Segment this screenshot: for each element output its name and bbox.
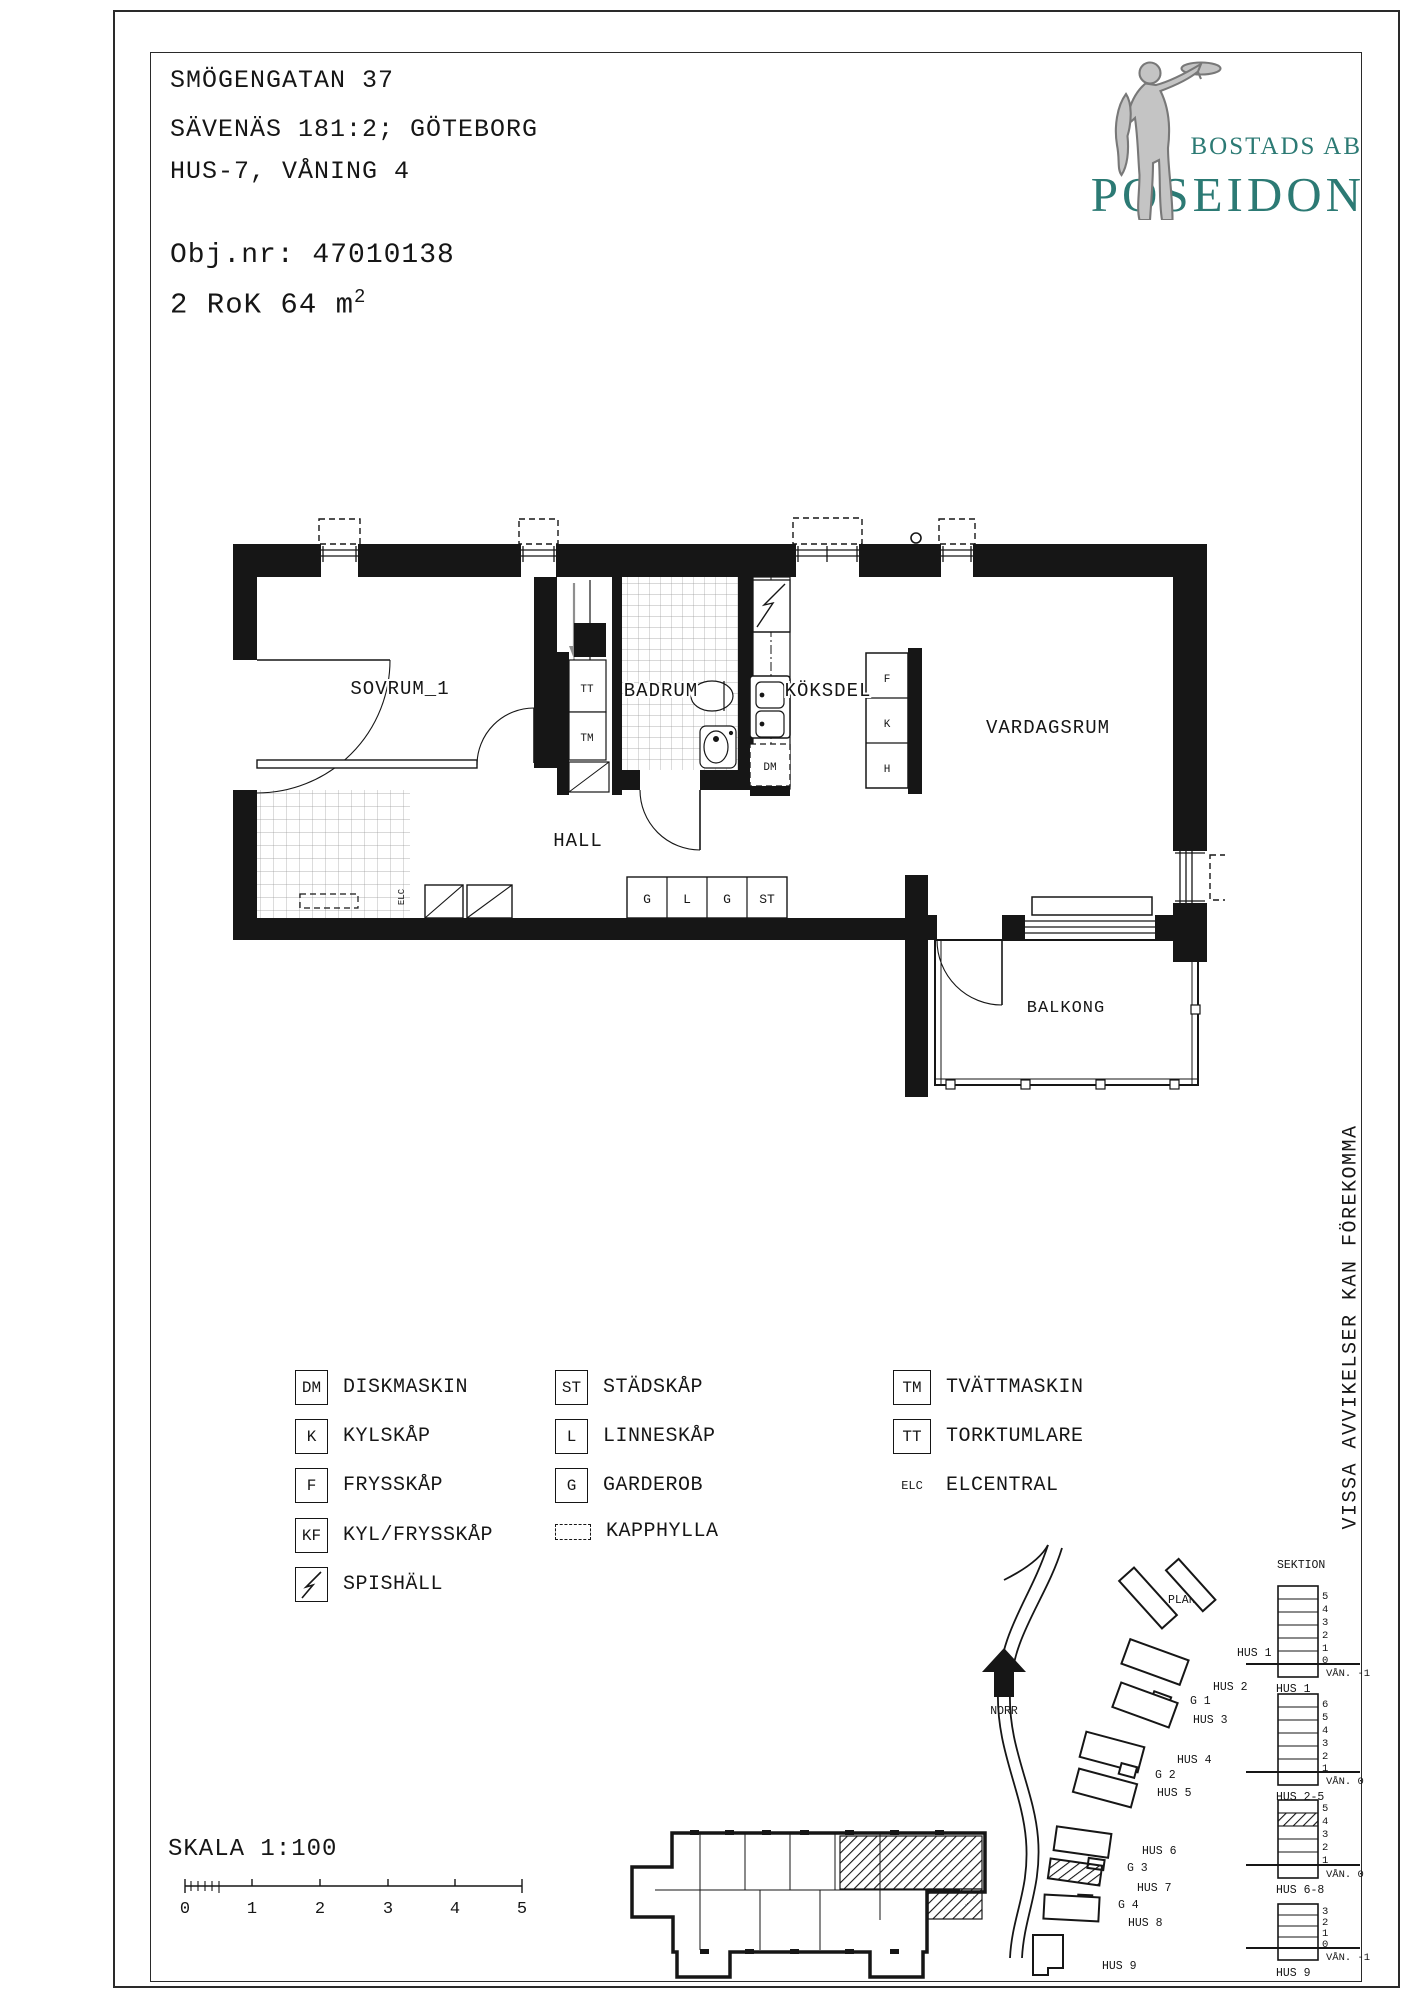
svg-text:VÅN. -1: VÅN. -1 (1326, 1667, 1370, 1680)
hus-label: HUS 2 (1213, 1681, 1248, 1694)
legend-row-tm: TM TVÄTTMASKIN (893, 1370, 1084, 1405)
svg-text:1: 1 (1322, 1763, 1328, 1775)
north-label: NORR (990, 1705, 1018, 1718)
hus-label: G 2 (1155, 1769, 1176, 1782)
address-line: SMÖGENGATAN 37 (170, 66, 394, 95)
hus-label: HUS 8 (1128, 1917, 1163, 1930)
svg-text:2: 2 (1322, 1842, 1328, 1854)
legend-row-f: F FRYSSKÅP (295, 1468, 443, 1503)
hus-label: HUS 9 (1102, 1960, 1137, 1973)
hus-label: HUS 7 (1137, 1882, 1172, 1895)
dm-symbol: DM (295, 1370, 328, 1405)
balcony-door (937, 940, 1002, 1005)
fridge-freezer-column: F K H (866, 648, 922, 794)
section-hus1 (1246, 1586, 1360, 1677)
house-floor-line: HUS-7, VÅNING 4 (170, 157, 410, 186)
scale-label: SKALA 1:100 (168, 1836, 337, 1863)
hus-label: G 3 (1127, 1862, 1148, 1875)
cabinet-label: H (884, 764, 891, 776)
shaft (574, 623, 606, 657)
svg-text:3: 3 (1322, 1738, 1328, 1750)
sektion-label: SEKTION (1277, 1559, 1325, 1572)
legend-row-elc: ELC ELCENTRAL (893, 1468, 1059, 1503)
window-sill (1032, 897, 1152, 915)
sink-icon (700, 726, 736, 768)
linneskap-label: L (683, 892, 691, 907)
legend-row-k: K KYLSKÅP (295, 1419, 431, 1454)
svg-text:VÅN. 0: VÅN. 0 (1326, 1868, 1364, 1881)
svg-text:5: 5 (517, 1900, 527, 1919)
property-line: SÄVENÄS 181:2; GÖTEBORG (170, 115, 538, 144)
hus-label: HUS 1 (1237, 1647, 1272, 1660)
legend-row-dm: DM DISKMASKIN (295, 1370, 468, 1405)
building-overview-plan (545, 1810, 1015, 1985)
hus-label: G 4 (1118, 1899, 1139, 1912)
legend-row-spis: SPISHÄLL (295, 1567, 443, 1602)
svg-text:0: 0 (1322, 1655, 1328, 1667)
bedroom-label: SOVRUM_1 (350, 678, 449, 700)
elc-symbol: ELC (893, 1468, 931, 1503)
svg-text:3: 3 (383, 1900, 393, 1919)
current-floor-hatch (1278, 1813, 1318, 1826)
legend-row-tt: TT TORKTUMLARE (893, 1419, 1084, 1454)
stadskap-label: ST (759, 892, 775, 907)
svg-text:VÅN. 0: VÅN. 0 (1326, 1775, 1364, 1788)
svg-text:1: 1 (1322, 1855, 1328, 1867)
svg-text:HUS 6-8: HUS 6-8 (1276, 1884, 1324, 1897)
balcony-label: BALKONG (1027, 999, 1105, 1018)
svg-text:4: 4 (1322, 1604, 1328, 1616)
elcentral-label: ELC (397, 888, 407, 905)
legend-row-st: ST STÄDSKÅP (555, 1370, 703, 1405)
window (939, 519, 975, 577)
bedroom-walls (257, 577, 557, 768)
window (319, 519, 360, 577)
svg-text:4: 4 (1322, 1725, 1328, 1737)
livingroom-label: VARDAGSRUM (986, 717, 1110, 739)
legend-row-g: G GARDEROB (555, 1468, 703, 1503)
apartment-floorplan: TT TM (225, 510, 1225, 1110)
f-symbol: F (295, 1468, 328, 1503)
kitchen-label: KÖKSDEL (785, 680, 872, 702)
svg-text:4: 4 (450, 1900, 460, 1919)
bathroom-label: BADRUM (624, 680, 698, 702)
bathroom-door (640, 790, 700, 850)
section-hus6-8 (1246, 1800, 1360, 1878)
hus-label: HUS 4 (1177, 1754, 1212, 1767)
svg-text:2: 2 (1322, 1751, 1328, 1763)
dishwasher-label: DM (763, 762, 776, 774)
disclaimer-note: VISSA AVVIKELSER KAN FÖREKOMMA (1340, 1124, 1363, 1529)
spishall-icon (295, 1567, 328, 1602)
svg-text:1: 1 (1322, 1643, 1328, 1655)
hus-label: HUS 6 (1142, 1845, 1177, 1858)
apartment-size: 2 RoK 64 m2 (170, 286, 366, 322)
stove-icon (753, 580, 790, 632)
fridge-label: K (884, 719, 891, 731)
window (519, 519, 558, 577)
garderob-label: G (723, 892, 731, 907)
g-symbol: G (555, 1468, 588, 1503)
kf-symbol: KF (295, 1518, 328, 1553)
svg-text:3: 3 (1322, 1829, 1328, 1841)
legend-row-kapphylla: KAPPHYLLA (555, 1520, 719, 1543)
hall-label: HALL (553, 830, 603, 852)
hus-label: G 1 (1190, 1695, 1211, 1708)
svg-text:6: 6 (1322, 1699, 1328, 1711)
site-plan-and-sections: NORR PLAN HUS 1 HUS 2 G 1 HUS 3 HUS 4 G … (960, 1538, 1380, 1986)
hus-label: HUS 3 (1193, 1714, 1228, 1727)
svg-text:3: 3 (1322, 1617, 1328, 1629)
poseidon-statue-icon (1072, 55, 1222, 220)
freezer-label: F (884, 674, 891, 686)
washer-label: TM (580, 733, 593, 745)
l-symbol: L (555, 1419, 588, 1454)
svg-text:1: 1 (247, 1900, 257, 1919)
legend-row-kf: KF KYL/FRYSSKÅP (295, 1518, 493, 1553)
svg-text:2: 2 (1322, 1630, 1328, 1642)
st-symbol: ST (555, 1370, 588, 1405)
svg-text:2: 2 (315, 1900, 325, 1919)
tm-symbol: TM (893, 1370, 931, 1405)
svg-text:HUS 9: HUS 9 (1276, 1967, 1311, 1980)
object-number: Obj.nr: 47010138 (170, 240, 455, 271)
dryer-label: TT (580, 684, 594, 696)
svg-text:4: 4 (1322, 1816, 1328, 1828)
livingroom-east-window (1173, 851, 1225, 903)
svg-text:0: 0 (1322, 1939, 1328, 1951)
closet-row: G L G ST (627, 877, 787, 918)
scale-bar: 0 1 2 3 4 5 (150, 1868, 580, 1930)
kapphylla-icon (555, 1524, 591, 1540)
tt-symbol: TT (893, 1419, 931, 1454)
entry-tiled-floor (257, 790, 410, 918)
vent-marker (911, 533, 921, 543)
svg-text:VÅN. -1: VÅN. -1 (1326, 1951, 1370, 1964)
floorplan-page: SMÖGENGATAN 37 SÄVENÄS 181:2; GÖTEBORG H… (0, 0, 1413, 2000)
svg-text:0: 0 (180, 1900, 190, 1919)
hus-label: HUS 5 (1157, 1787, 1192, 1800)
svg-text:5: 5 (1322, 1712, 1328, 1724)
legend-row-l: L LINNESKÅP (555, 1419, 716, 1454)
k-symbol: K (295, 1419, 328, 1454)
north-arrow-icon (982, 1648, 1026, 1697)
svg-text:5: 5 (1322, 1803, 1328, 1815)
garderob-label: G (643, 892, 651, 907)
svg-text:5: 5 (1322, 1591, 1328, 1603)
svg-text:HUS 2-5: HUS 2-5 (1276, 1791, 1324, 1804)
section-hus2-5 (1246, 1694, 1360, 1785)
window (793, 518, 862, 577)
